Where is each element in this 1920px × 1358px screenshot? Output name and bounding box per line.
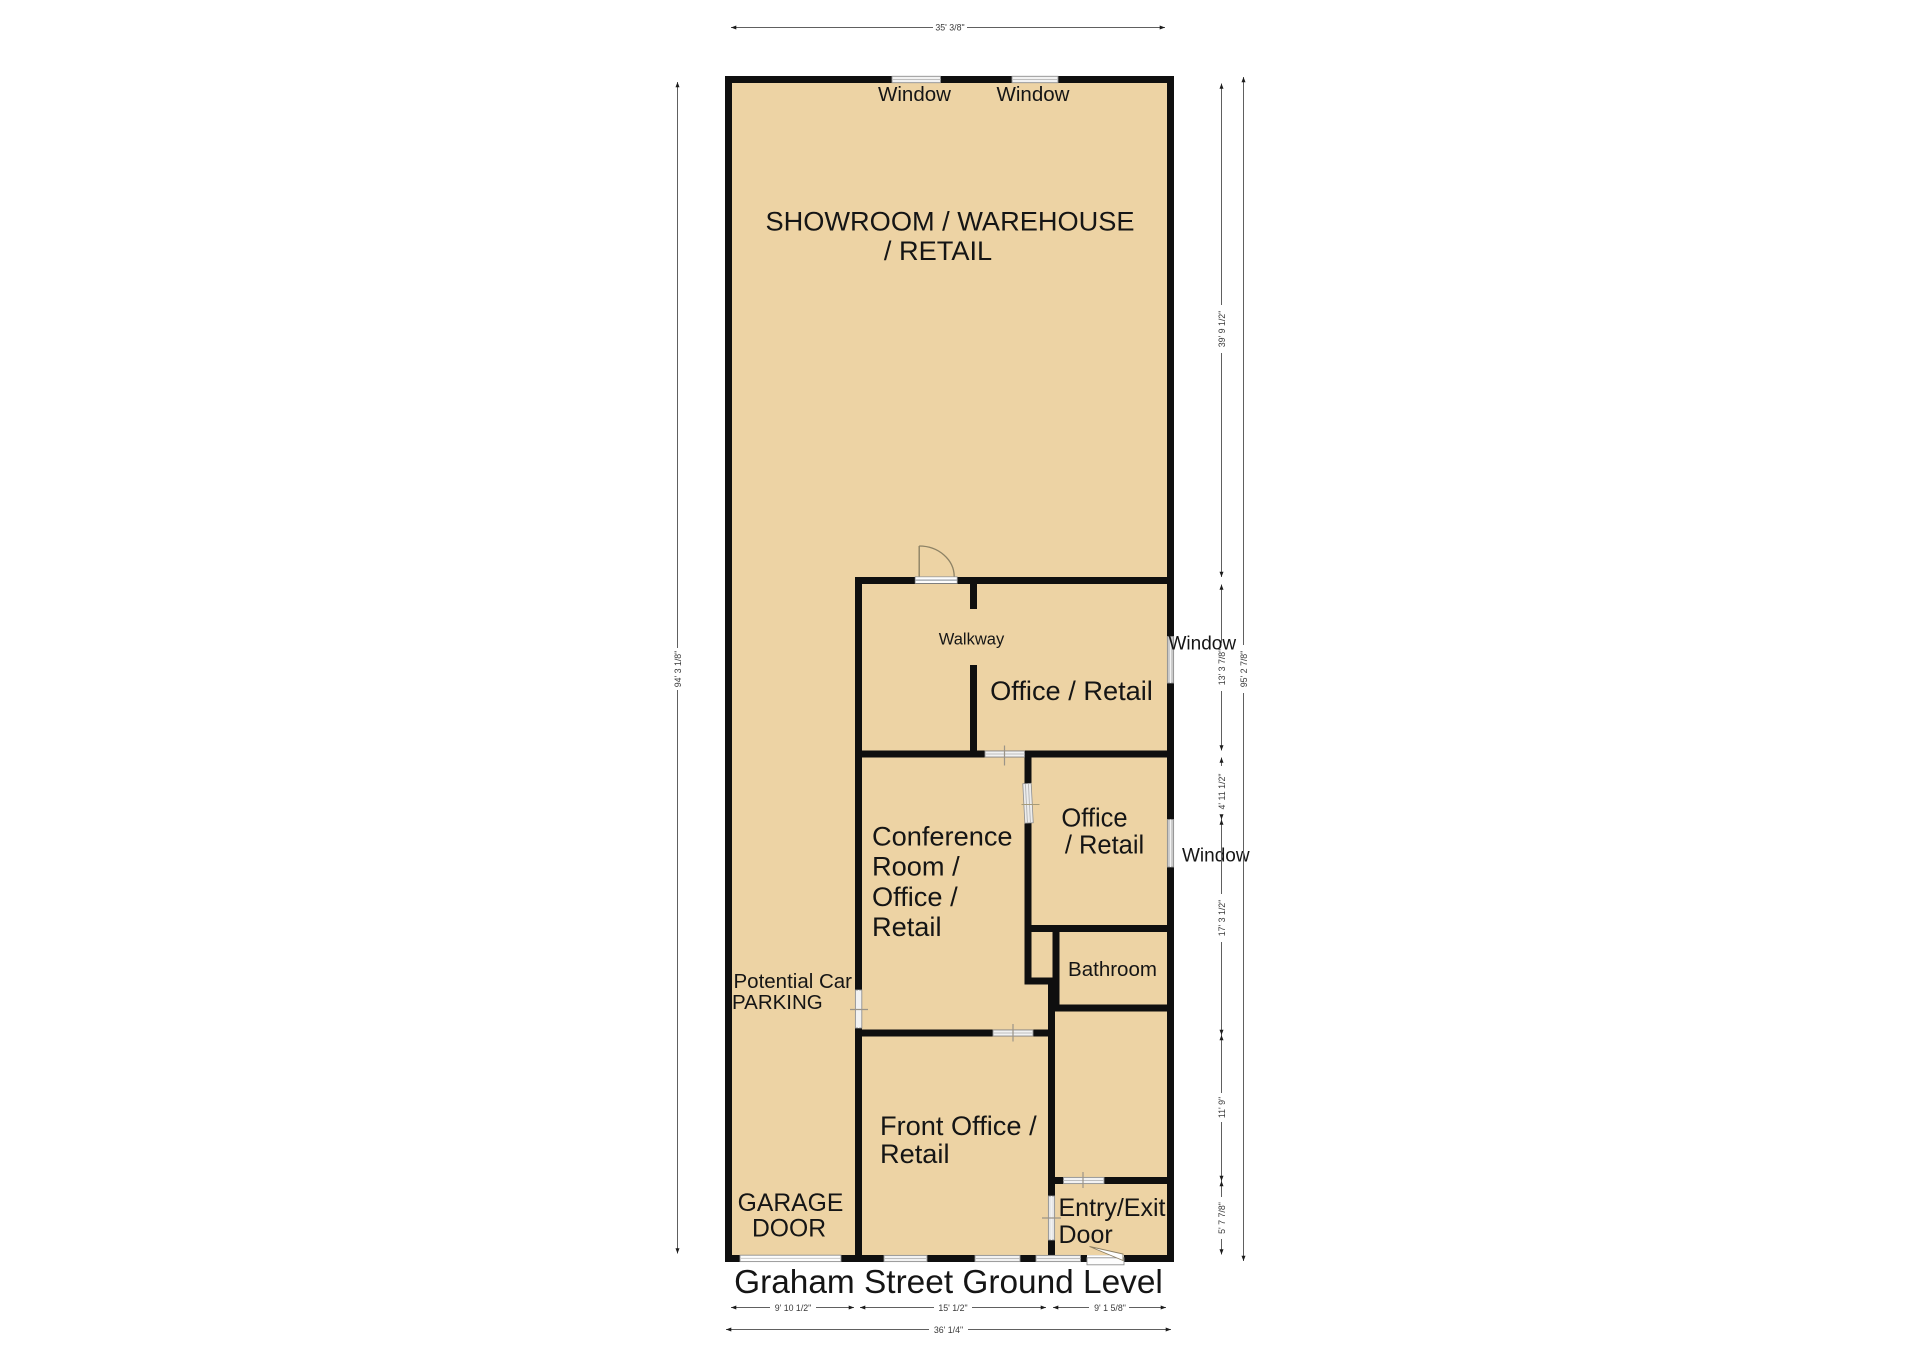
svg-text:Graham Street Ground Level: Graham Street Ground Level: [734, 1264, 1163, 1301]
svg-text:17' 3 1/2": 17' 3 1/2": [1217, 900, 1227, 937]
svg-text:95' 2 7/8": 95' 2 7/8": [1239, 651, 1249, 688]
svg-text:/ Retail: / Retail: [1065, 832, 1144, 860]
svg-text:/ RETAIL: / RETAIL: [884, 235, 992, 266]
svg-text:GARAGE: GARAGE: [738, 1190, 844, 1217]
svg-text:94' 3 1/8": 94' 3 1/8": [673, 651, 683, 688]
svg-text:11' 9": 11' 9": [1217, 1097, 1227, 1118]
svg-text:Window: Window: [878, 83, 951, 106]
svg-text:36' 1/4": 36' 1/4": [934, 1325, 963, 1335]
svg-text:Walkway: Walkway: [939, 631, 1005, 649]
svg-text:Window: Window: [1182, 846, 1250, 867]
svg-text:Potential Car: Potential Car: [734, 970, 853, 993]
svg-text:9' 10 1/2": 9' 10 1/2": [775, 1303, 812, 1313]
svg-text:Retail: Retail: [872, 911, 942, 942]
svg-text:39' 9 1/2": 39' 9 1/2": [1217, 311, 1227, 348]
svg-text:5' 7 7/8": 5' 7 7/8": [1217, 1202, 1227, 1234]
svg-text:9' 1 5/8": 9' 1 5/8": [1094, 1303, 1126, 1313]
svg-text:Room /: Room /: [872, 851, 960, 882]
svg-text:15' 1/2": 15' 1/2": [938, 1303, 967, 1313]
svg-text:Door: Door: [1059, 1221, 1113, 1249]
svg-text:PARKING: PARKING: [732, 991, 823, 1014]
svg-text:35' 3/8": 35' 3/8": [935, 23, 964, 33]
svg-text:Retail: Retail: [880, 1138, 950, 1169]
svg-text:Bathroom: Bathroom: [1068, 958, 1157, 981]
svg-text:Office: Office: [1061, 805, 1127, 833]
svg-text:Office / Retail: Office / Retail: [990, 675, 1153, 706]
svg-text:SHOWROOM / WAREHOUSE: SHOWROOM / WAREHOUSE: [765, 206, 1134, 237]
svg-text:Front Office /: Front Office /: [880, 1110, 1037, 1141]
svg-text:13' 3 7/8": 13' 3 7/8": [1217, 649, 1227, 686]
svg-text:Office /: Office /: [872, 881, 958, 912]
svg-text:4' 11 1/2": 4' 11 1/2": [1217, 774, 1227, 810]
svg-text:Entry/Exit: Entry/Exit: [1059, 1194, 1166, 1222]
svg-text:Window: Window: [997, 83, 1070, 106]
svg-text:Conference: Conference: [872, 821, 1013, 852]
svg-text:DOOR: DOOR: [752, 1215, 826, 1242]
